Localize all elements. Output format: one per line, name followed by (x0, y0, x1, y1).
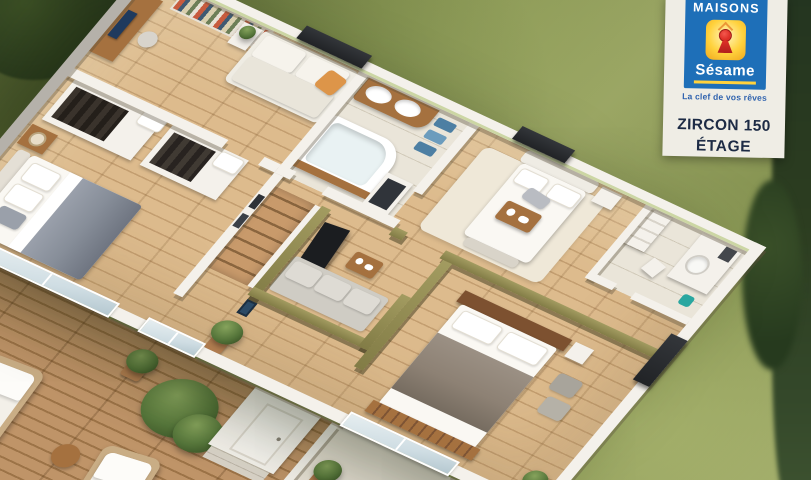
keyhole-head (719, 29, 732, 42)
logo-underline (694, 80, 756, 84)
maisons-sesame-logo: MAISONS Sésame (684, 0, 768, 90)
brand-tagline: La clef de vos rêves (669, 91, 779, 103)
brand-panel: MAISONS Sésame La clef de vos rêves ZIRC… (662, 0, 787, 158)
tree-blob-right (742, 180, 802, 370)
plan-floor-label: ÉTAGE (668, 137, 778, 157)
logo-line2: Sésame (695, 61, 755, 79)
floorplan-render: MAISONS Sésame La clef de vos rêves ZIRC… (0, 0, 811, 480)
plan-model-label: ZIRCON 150 (669, 116, 779, 136)
logo-line1: MAISONS (693, 0, 760, 15)
keyhole-icon (705, 20, 746, 61)
keyhole-stem (718, 41, 733, 53)
